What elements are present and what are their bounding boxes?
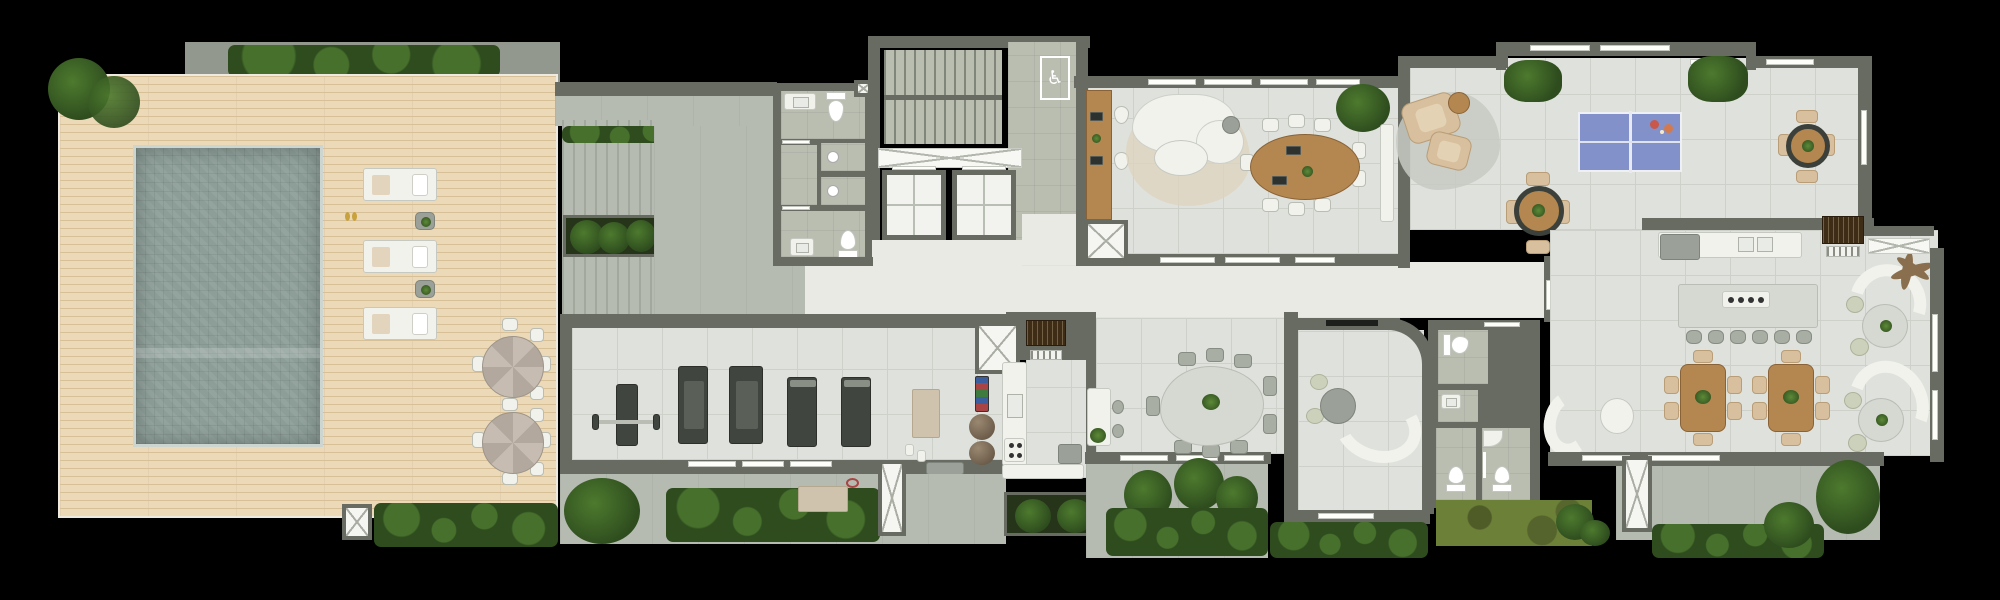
kitchen-sink (1007, 394, 1023, 418)
laptop (1090, 112, 1103, 121)
shrub (1580, 520, 1610, 546)
party-chair (1752, 402, 1767, 420)
hedge (374, 503, 558, 547)
window-sill (1120, 455, 1168, 461)
round-table (1600, 398, 1634, 434)
shower-head (827, 185, 839, 197)
fridge (1660, 234, 1700, 260)
dining-chair (1146, 396, 1160, 416)
toilet (1443, 334, 1451, 356)
elevator (882, 170, 946, 240)
deck-chair (502, 318, 518, 331)
island-stool (1708, 330, 1724, 344)
dining-chair (1230, 440, 1248, 454)
island-cooktop (1722, 291, 1770, 308)
service-shaft (1622, 456, 1652, 532)
fridge (1058, 444, 1082, 464)
armchair-seat (1436, 140, 1462, 164)
window-sill (688, 461, 736, 467)
door-threshold (782, 206, 810, 210)
deck-chair (530, 328, 544, 342)
skewer-rack (1030, 350, 1062, 360)
burner (1017, 453, 1022, 458)
toilet (1494, 466, 1510, 484)
dumbbell-rack (975, 376, 989, 412)
hedge (228, 45, 500, 77)
dining-chair (1234, 354, 1252, 368)
laptop (1272, 176, 1287, 185)
shower-lobby-floor (781, 145, 817, 205)
service-shaft (878, 460, 906, 536)
hedge (1106, 508, 1268, 556)
indoor-plant (1504, 60, 1562, 102)
sun-lounger (363, 307, 437, 340)
window-sill (1295, 257, 1335, 263)
window-sill (1932, 390, 1938, 440)
charcoal-grill (1822, 216, 1864, 244)
toilet (1446, 484, 1466, 492)
deck-chair (502, 398, 518, 411)
vanity-sink (1441, 394, 1461, 409)
treadmill (729, 366, 763, 444)
elevator (952, 170, 1016, 240)
side-table (1448, 92, 1470, 114)
umbrella-table (482, 412, 544, 474)
counter-plant (1090, 428, 1106, 443)
table-plant (1876, 414, 1888, 426)
deck-chair (502, 472, 518, 485)
service-shaft (1084, 220, 1128, 262)
dried-palm-decor (1888, 250, 1936, 294)
shrub (1764, 502, 1814, 548)
cooktop (1004, 438, 1025, 462)
table-plant (1783, 390, 1799, 404)
exercise-ball (969, 441, 995, 465)
party-chair (1664, 376, 1679, 394)
dining-chair (1178, 352, 1196, 366)
game-chair (1796, 110, 1818, 123)
window-sill (1204, 79, 1252, 85)
exercise-bike (841, 377, 871, 447)
lounger-pillow (412, 313, 428, 335)
window-sill (1316, 79, 1360, 85)
burner (1017, 443, 1022, 448)
paddle (1664, 124, 1673, 133)
counter-stool (1112, 424, 1124, 438)
work-desk (1086, 90, 1112, 220)
pouf (1844, 392, 1862, 409)
table-plant (1302, 166, 1313, 177)
treadmill-belt (736, 381, 758, 429)
gym-walls (560, 314, 572, 472)
burner (1748, 297, 1754, 303)
dumbbells (917, 450, 926, 462)
service-shaft (342, 504, 372, 540)
swimming-pool (133, 145, 323, 447)
lounger-pillow (412, 174, 428, 196)
potted-plant (421, 217, 431, 227)
counter-stool (1112, 400, 1124, 414)
bike-handlebar (844, 380, 870, 387)
table-plant (1695, 390, 1711, 404)
floor-plan: ♿ ♿ (0, 0, 2000, 600)
dining-chair (1263, 376, 1277, 396)
laptop (1090, 156, 1103, 165)
toilet (840, 230, 856, 250)
sun-lounger (363, 240, 437, 273)
party-chair (1727, 376, 1742, 394)
elevator-lobby-shaft (878, 148, 1022, 168)
meeting-chair (1262, 118, 1279, 132)
window-sill (1148, 79, 1196, 85)
palm (1015, 499, 1051, 533)
bar-sink (1738, 237, 1754, 252)
meeting-chair (1288, 202, 1305, 216)
pouf (1850, 338, 1869, 356)
wall-tv (1326, 320, 1378, 326)
dining-chair (1263, 414, 1277, 434)
window-sill (1766, 59, 1814, 65)
window-sill (1861, 110, 1867, 165)
potted-plant (421, 285, 431, 295)
shrub (1816, 460, 1880, 534)
table-plant (1802, 140, 1814, 152)
palm-planter (563, 215, 657, 257)
laptop (1286, 146, 1301, 155)
flip-flops (345, 212, 350, 221)
pouf (1848, 434, 1867, 452)
meeting-chair (1314, 198, 1331, 212)
window-sill (1225, 257, 1280, 263)
corridor-floor (805, 262, 1553, 318)
sun-lounger (363, 168, 437, 201)
indoor-plant (1688, 56, 1748, 102)
stair-landing-rail (884, 95, 1002, 100)
kitchen-counter (1002, 464, 1084, 479)
paddle (1650, 120, 1659, 129)
sink-basin (1446, 398, 1457, 407)
table-plant (1532, 204, 1545, 217)
coffee-table (1154, 140, 1208, 176)
island-stool (1774, 330, 1790, 344)
grab-bar (1483, 452, 1486, 478)
party-chair (1815, 376, 1830, 394)
vanity-sink (784, 93, 816, 110)
sink-basin (793, 97, 809, 108)
yoga-mat (912, 389, 940, 438)
gym-walls (560, 314, 1008, 328)
desk-plant (1092, 134, 1101, 143)
shower-head (827, 151, 839, 163)
barbell-plate (653, 414, 660, 430)
window-sill (1160, 257, 1215, 263)
window-sill (1224, 455, 1264, 461)
window-sill (1648, 455, 1720, 461)
exercise-ball (969, 414, 995, 440)
island-stool (1730, 330, 1746, 344)
lounger-cushion (372, 247, 390, 267)
burner (1009, 453, 1014, 458)
island-stool (1796, 330, 1812, 344)
sink-basin (796, 243, 809, 253)
exercise-bike (787, 377, 817, 447)
burner (1009, 443, 1014, 448)
window-sill (1530, 45, 1590, 51)
dining-chair (1202, 444, 1220, 458)
burner (1758, 297, 1764, 303)
shower-stall (821, 177, 865, 205)
outdoor-mat (798, 486, 848, 512)
side-table (415, 212, 435, 230)
accessible-sign: ♿ (1040, 56, 1070, 100)
pouf (1310, 374, 1328, 390)
window-sill (1260, 79, 1308, 85)
window-sill (1600, 45, 1670, 51)
window-sill (1318, 513, 1374, 519)
skewer-rack (1826, 246, 1860, 257)
window-sill (742, 461, 784, 467)
toilet (826, 92, 846, 100)
party-chair (1752, 376, 1767, 394)
lounger-pillow (412, 246, 428, 268)
games-walls (1400, 56, 1508, 68)
sideboard (1380, 124, 1394, 222)
party-chair (1781, 433, 1801, 446)
umbrella-table (482, 336, 544, 398)
island-stool (1686, 330, 1702, 344)
bar-sink (1757, 237, 1773, 252)
wheelchair-accessible-icon: ♿ (1046, 67, 1063, 89)
treadmill-belt (684, 381, 704, 429)
party-chair (1727, 402, 1742, 420)
door-threshold (1484, 322, 1520, 327)
window-sill (1932, 314, 1938, 372)
meeting-chair (1288, 114, 1305, 128)
shrub (564, 478, 640, 544)
wall-segment (1284, 312, 1298, 524)
treadmill (678, 366, 708, 444)
bike-handlebar (790, 380, 816, 387)
window-sill (790, 461, 832, 467)
shower-stall (821, 143, 865, 171)
game-chair (1526, 240, 1550, 254)
charcoal-grill (1026, 320, 1066, 346)
side-table (415, 280, 435, 298)
party-chair (1781, 350, 1801, 363)
side-table (1222, 116, 1240, 134)
window-seat (1868, 238, 1930, 254)
hedge (1270, 522, 1428, 558)
pouf (1846, 296, 1864, 313)
elevator-door (892, 166, 936, 170)
door-threshold (782, 140, 810, 144)
party-chair (1815, 402, 1830, 420)
lounger-cushion (372, 314, 390, 334)
party-chair (1664, 402, 1679, 420)
burner (1738, 297, 1744, 303)
table-plant (1202, 394, 1220, 410)
armchair-seat (1414, 102, 1448, 133)
party-walls (1864, 226, 1934, 236)
dumbbells (905, 444, 914, 456)
barbell-plate (592, 414, 599, 430)
game-chair (1526, 172, 1550, 186)
corner-plant (88, 76, 140, 128)
meeting-chair (1262, 198, 1279, 212)
jump-rope (846, 478, 859, 488)
ping-pong-table (1578, 112, 1682, 172)
burner (1728, 297, 1734, 303)
lounger-cushion (372, 175, 390, 195)
island-stool (1752, 330, 1768, 344)
table-plant (1880, 320, 1892, 332)
party-chair (1693, 350, 1713, 363)
flip-flops (352, 212, 357, 221)
wall-segment (773, 257, 873, 266)
terrace (654, 262, 805, 318)
toilet (1492, 484, 1512, 492)
ping-pong-ball (1660, 130, 1664, 134)
ping-pong-centerline (1580, 141, 1680, 143)
elevator-door (962, 166, 1006, 170)
roof-band (555, 82, 777, 96)
toilet (1448, 466, 1464, 484)
games-walls (1496, 42, 1506, 70)
barbell (592, 420, 660, 424)
pool-bench (136, 348, 320, 358)
meeting-chair (1314, 118, 1331, 132)
vanity-sink (790, 238, 814, 256)
game-chair (1796, 170, 1818, 183)
palm (626, 220, 656, 252)
party-chair (1693, 433, 1713, 446)
bench-press (616, 384, 638, 446)
dining-chair (1206, 348, 1224, 362)
